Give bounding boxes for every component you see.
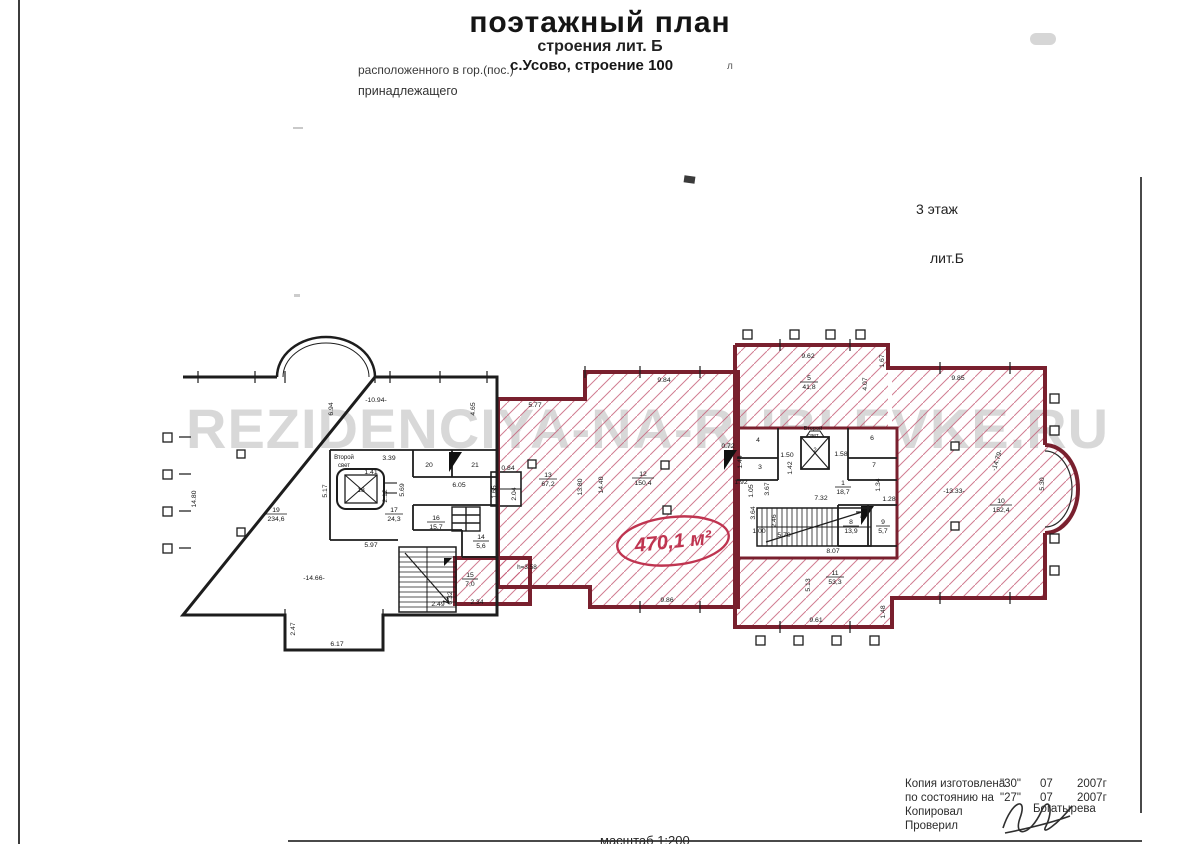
dim-label: 1.92 [734, 479, 747, 486]
room-area: 41,8 [802, 384, 815, 391]
stamp-asof-day: "27" [1000, 791, 1021, 805]
room-number: 5 [807, 375, 811, 382]
dim-label: 2.49 [431, 601, 444, 608]
dim-label: 6.17 [330, 641, 343, 648]
dim-label: 3.39 [382, 455, 395, 462]
stamp-checked-label: Проверил [905, 820, 958, 832]
stamp-made-row: Копия изготовлена "30" 07 2007г [905, 777, 1005, 791]
dim-label: 4.07 [862, 377, 869, 390]
dim-label: 0.72 [721, 443, 734, 450]
dim-label: 9.84 [657, 377, 670, 384]
stamp-made-year: 2007г [1077, 777, 1107, 791]
dim-label: 2.04 [511, 487, 518, 500]
scan-artifact [684, 175, 696, 183]
dim-label: 1.65 [491, 485, 498, 498]
room-number: 12 [639, 471, 647, 478]
stamp-copied-row: Копировал Богатырева [905, 805, 1005, 819]
dim-label: 5.17 [322, 484, 329, 497]
dim-label: 5.30 [1039, 477, 1046, 490]
stamp-made-label: Копия изготовлена [905, 778, 1005, 790]
dim-label: -10.94- [365, 397, 387, 404]
dim-label: 14.40 [598, 476, 605, 493]
room-area: 18,7 [836, 489, 849, 496]
page-border-left [18, 0, 20, 844]
dim-label: 9.85 [951, 375, 964, 382]
room-area: 24,3 [387, 516, 400, 523]
dim-label: 6.94 [328, 402, 335, 415]
page-border-right [1140, 177, 1142, 813]
dim-label: 1.28 [882, 496, 895, 503]
room-area: 67,2 [541, 481, 554, 488]
room-number: 13 [544, 472, 552, 479]
dim-label: 9.62 [801, 353, 814, 360]
stamp-made-day: "30" [1000, 777, 1021, 791]
dim-label: 5.69 [399, 483, 406, 496]
scan-artifact [1030, 33, 1056, 45]
dim-label: 3.67 [764, 482, 771, 495]
second-light-label: Второй [334, 454, 354, 461]
second-light-label: Второй [804, 425, 823, 432]
room-area: 15,7 [429, 524, 442, 531]
room-area: 150,4 [634, 480, 651, 487]
stamp-copied-label: Копировал [905, 806, 963, 818]
stamp-made-month: 07 [1040, 777, 1053, 791]
room-number: 20 [425, 462, 433, 469]
copy-stamp: Копия изготовлена "30" 07 2007г по состо… [905, 777, 1005, 833]
dim-label: 9.86 [660, 597, 673, 604]
dim-label: 5.97 [364, 542, 377, 549]
stamp-checked-row: Проверил [905, 819, 1005, 833]
room-number: 19 [272, 507, 280, 514]
dim-label: 2.46 [771, 514, 778, 527]
dim-label: 1.58 [834, 451, 847, 458]
dim-label: 1.48 [880, 605, 887, 618]
dim-label: -14.66- [303, 575, 325, 582]
room-number: 1 [841, 480, 845, 487]
dim-label: 2.12 [382, 489, 389, 502]
room-number: 18 [357, 487, 365, 494]
stamp-surname: Богатырева [1033, 802, 1096, 816]
dim-label: 2.47 [290, 622, 297, 635]
room-area: 53,3 [828, 579, 841, 586]
room-number: 7 [872, 462, 876, 469]
dim-label: 1.34 [875, 478, 882, 491]
dim-label: 5.70 [777, 532, 790, 539]
dim-label: 4.65 [470, 402, 477, 415]
dim-label: 14.80 [191, 490, 198, 507]
scale-label: масштаб 1:200 [600, 833, 690, 844]
room-number: 16 [432, 515, 440, 522]
room-area: 5,7 [878, 528, 888, 535]
second-light-label: свет [338, 463, 350, 469]
dim-label: 1.44 [737, 455, 744, 468]
dim-label: 1.00 [752, 528, 765, 535]
scan-artifact [293, 127, 303, 129]
shelf-grid-icon [452, 507, 480, 531]
room-number: 17 [390, 507, 398, 514]
dim-label: 9.61 [809, 617, 822, 624]
page-border-bottom [288, 840, 1142, 842]
dim-label: 5.13 [805, 578, 812, 591]
room-area: 5,6 [476, 543, 486, 550]
room-number: 15 [466, 572, 474, 579]
dim-label: 3.64 [750, 506, 757, 519]
room-number: 9 [881, 519, 885, 526]
room-area: 152,4 [992, 507, 1009, 514]
height-note: h=3.58 [517, 564, 537, 571]
second-light-label: свет [807, 433, 819, 439]
floor-plan-drawing: 14.80 6.94 -10.94- 4.65 1.41 3.39 5.17 2… [0, 0, 1200, 844]
room-area: 7,0 [465, 581, 475, 588]
dim-label: 2.34 [470, 599, 483, 606]
dim-label: 6.05 [452, 482, 465, 489]
scanned-floor-plan-page: поэтажный план строения лит. Б расположе… [0, 0, 1200, 844]
stamp-asof-row: по состоянию на "27" 07 2007г [905, 791, 1005, 805]
dim-label: 7.32 [814, 495, 827, 502]
dim-label: 0.84 [501, 465, 514, 472]
stamp-asof-label: по состоянию на [905, 792, 994, 804]
room-number: 10 [997, 498, 1005, 505]
dim-label: 1.42 [787, 461, 794, 474]
dim-label: 5.77 [528, 402, 541, 409]
dim-label: 1.50 [780, 452, 793, 459]
room-number: 8 [849, 519, 853, 526]
dim-label: 6.32 [447, 591, 454, 604]
room-area: 13,9 [844, 528, 857, 535]
dim-label: -13.33- [943, 488, 965, 495]
room-number: 4 [756, 437, 760, 444]
dim-label: 8.07 [826, 548, 839, 555]
room-number: 11 [831, 570, 838, 577]
room-number: 21 [471, 462, 479, 469]
room-number: 3 [758, 464, 762, 471]
scan-artifact [294, 294, 300, 297]
room-area: 234,6 [267, 516, 284, 523]
dim-label: 13.80 [577, 478, 584, 495]
room-number: 14 [477, 534, 485, 541]
dim-label: 1.41 [364, 469, 377, 476]
dim-label: 1.05 [748, 484, 755, 497]
room-number: 6 [870, 435, 874, 442]
dim-label: 1.67 [879, 354, 886, 367]
